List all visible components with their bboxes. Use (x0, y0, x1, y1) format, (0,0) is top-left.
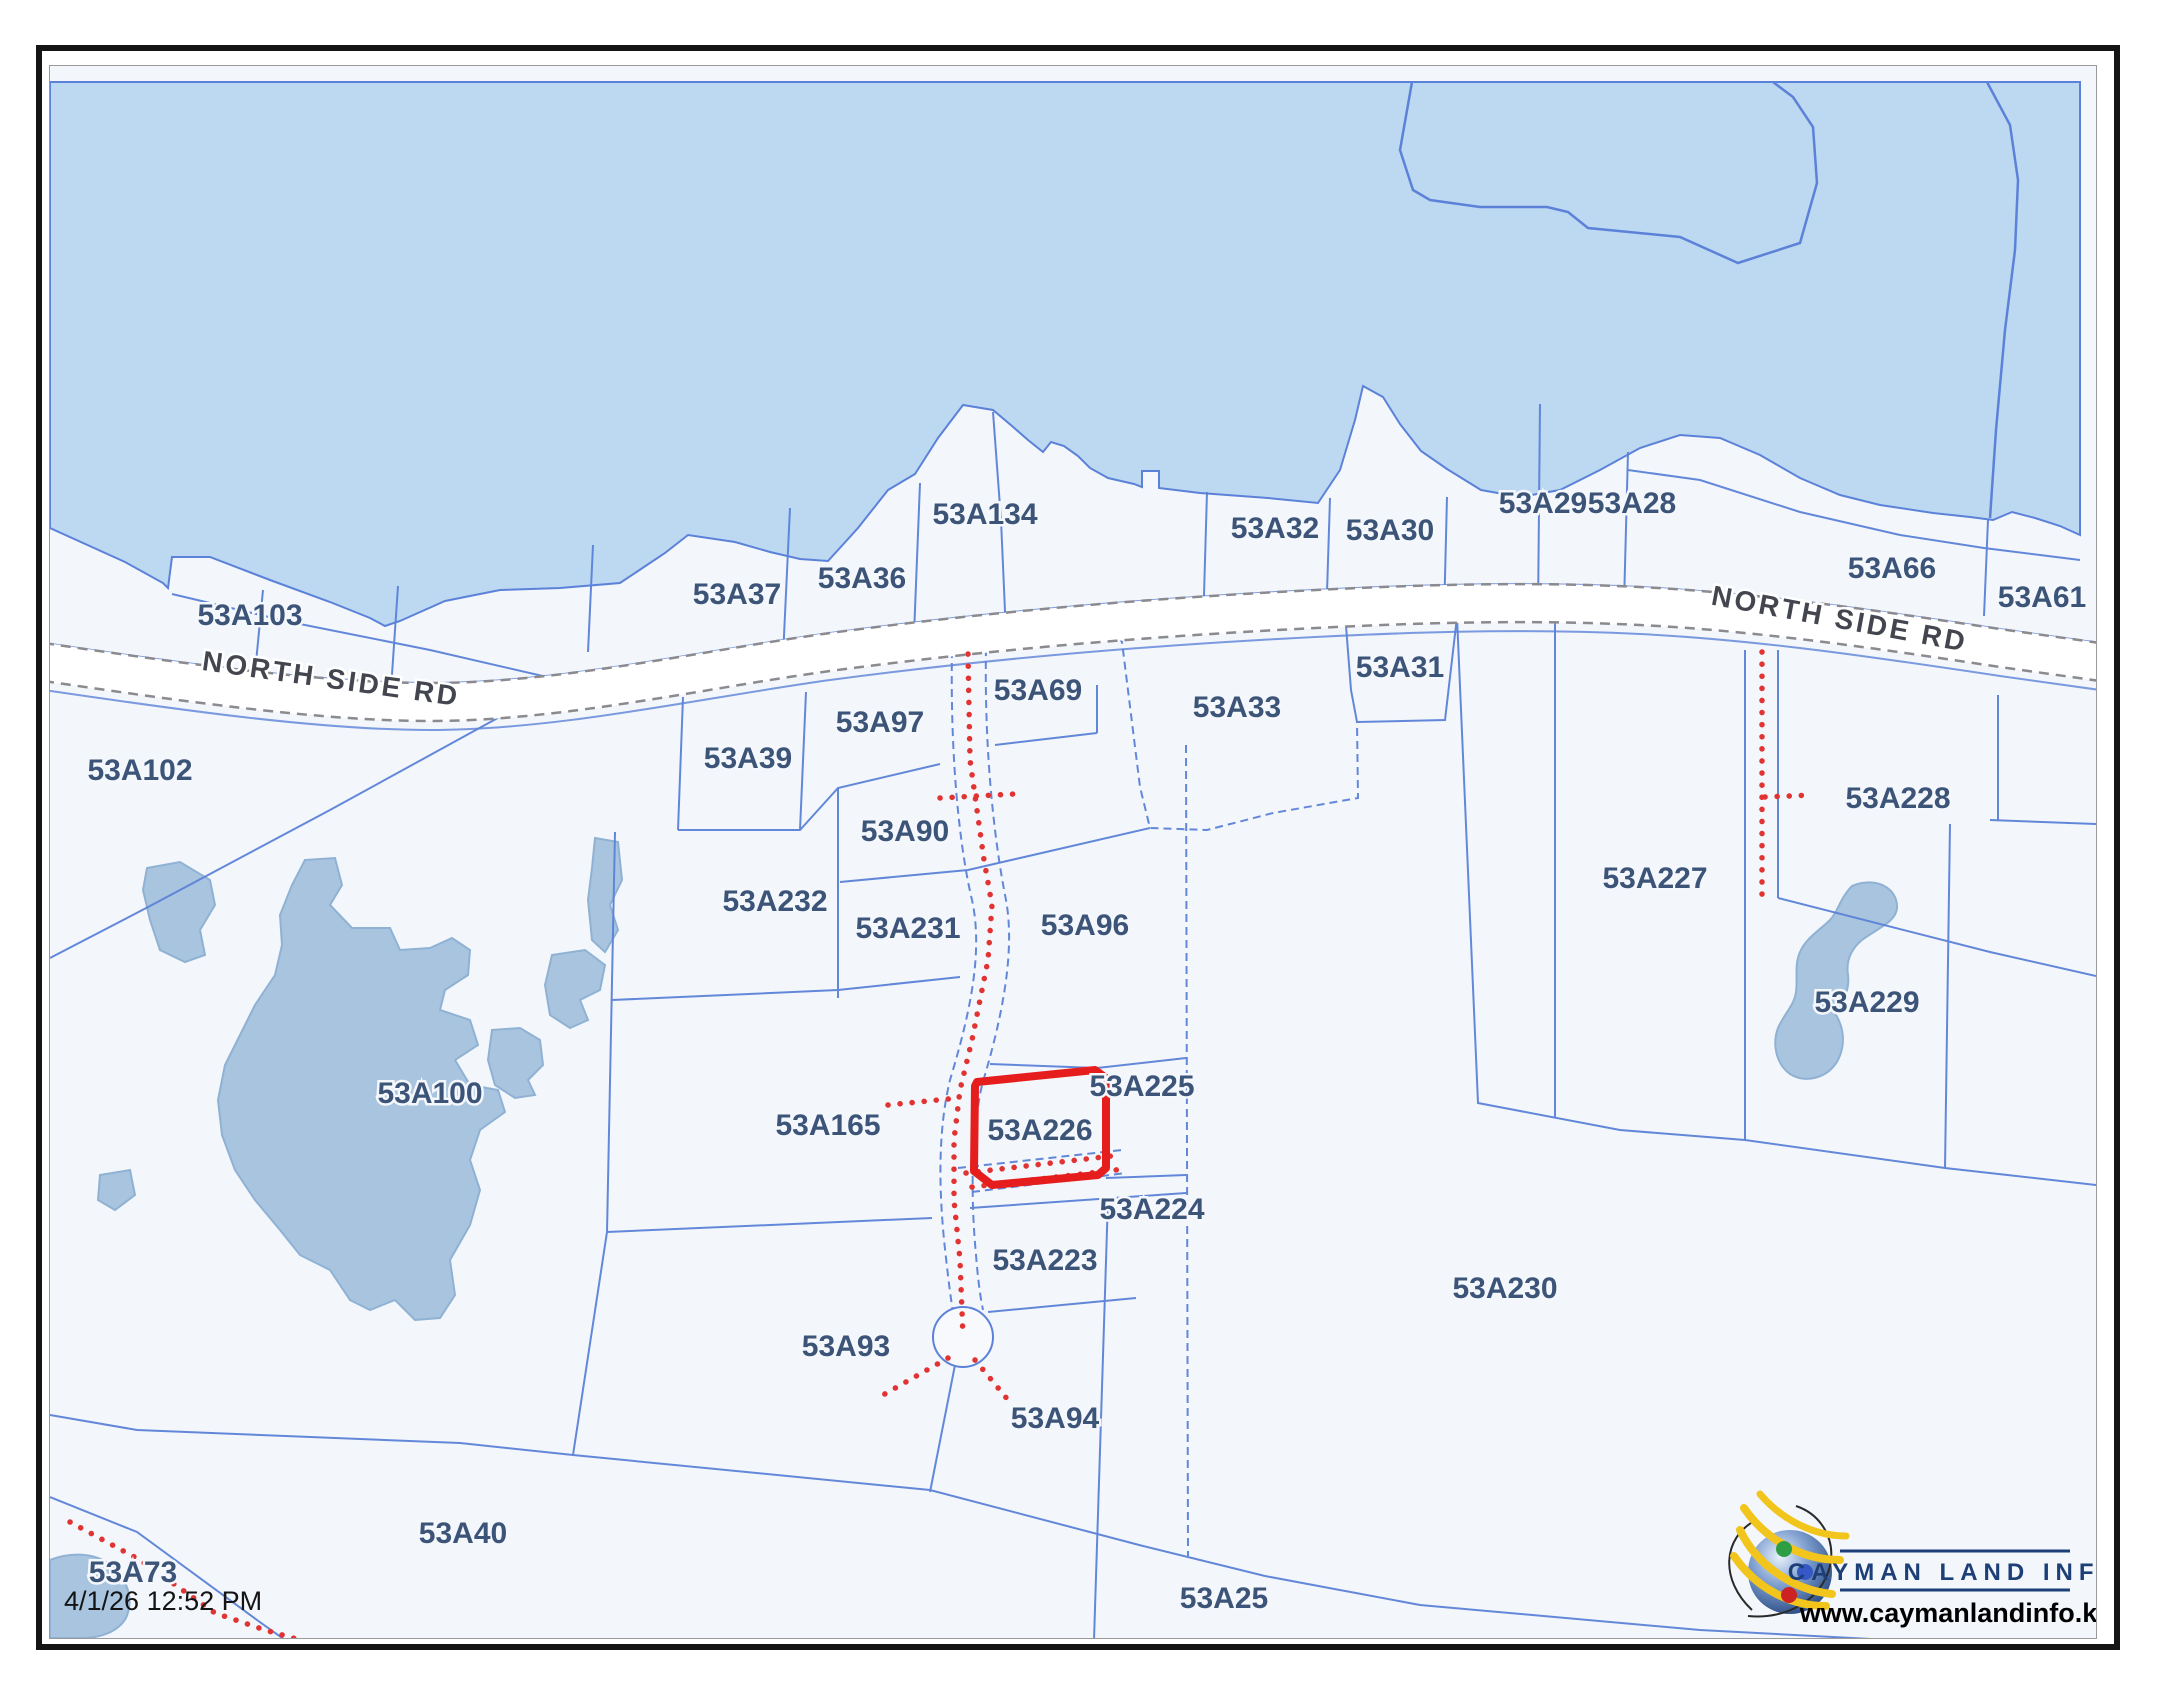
parcel-label: 53A224 (1099, 1193, 1204, 1226)
parcel-label: 53A232 (722, 885, 827, 918)
parcel-label: 53A103 (197, 599, 302, 632)
parcel-label: 53A225 (1089, 1070, 1194, 1103)
parcel-label: 53A100 (377, 1077, 482, 1110)
brand-name: CAYMAN LAND INFO (1788, 1559, 2124, 1586)
parcel-label: 53A94 (1011, 1402, 1100, 1435)
parcel-label: 53A39 (704, 742, 792, 775)
parcel-label: 53A33 (1193, 691, 1281, 724)
parcel-label: 53A25 (1180, 1582, 1268, 1615)
brand-url: www.caymanlandinfo.ky (1799, 1598, 2113, 1628)
parcel-label: 53A134 (932, 498, 1037, 531)
parcel-label: 53A40 (419, 1517, 507, 1550)
parcel-label: 53A73 (89, 1556, 177, 1589)
parcel-label: 53A223 (992, 1244, 1097, 1277)
parcel-label: 53A165 (775, 1109, 880, 1142)
parcel-label-highlighted: 53A226 (987, 1114, 1092, 1147)
parcel-label: 53A229 (1814, 986, 1919, 1019)
map-content: 53A103 53A102 53A100 53A37 53A36 53A134 … (44, 66, 2124, 1640)
parcel-label: 53A231 (855, 912, 960, 945)
map-canvas: 53A103 53A102 53A100 53A37 53A36 53A134 … (0, 0, 2168, 1700)
parcel-label: 53A102 (87, 754, 192, 787)
parcel-label: 53A29 (1499, 487, 1587, 520)
timestamp: 4/1/26 12:52 PM (64, 1586, 262, 1616)
parcel-label: 53A32 (1231, 512, 1319, 545)
parcel-label: 53A30 (1346, 514, 1434, 547)
parcel-label: 53A66 (1848, 552, 1936, 585)
parcel-label: 53A36 (818, 562, 906, 595)
parcel-label: 53A28 (1588, 487, 1676, 520)
map-export-page: 53A103 53A102 53A100 53A37 53A36 53A134 … (0, 0, 2168, 1700)
parcel-label: 53A97 (836, 706, 924, 739)
parcel-label: 53A96 (1041, 909, 1129, 942)
parcel-label: 53A69 (994, 674, 1082, 707)
parcel-label: 53A31 (1356, 651, 1444, 684)
parcel-label: 53A90 (861, 815, 949, 848)
parcel-label: 53A227 (1602, 862, 1707, 895)
parcel-label: 53A93 (802, 1330, 890, 1363)
parcel-label: 53A37 (693, 578, 781, 611)
parcel-label: 53A61 (1998, 581, 2086, 614)
parcel-label: 53A230 (1452, 1272, 1557, 1305)
parcel-label: 53A228 (1845, 782, 1950, 815)
